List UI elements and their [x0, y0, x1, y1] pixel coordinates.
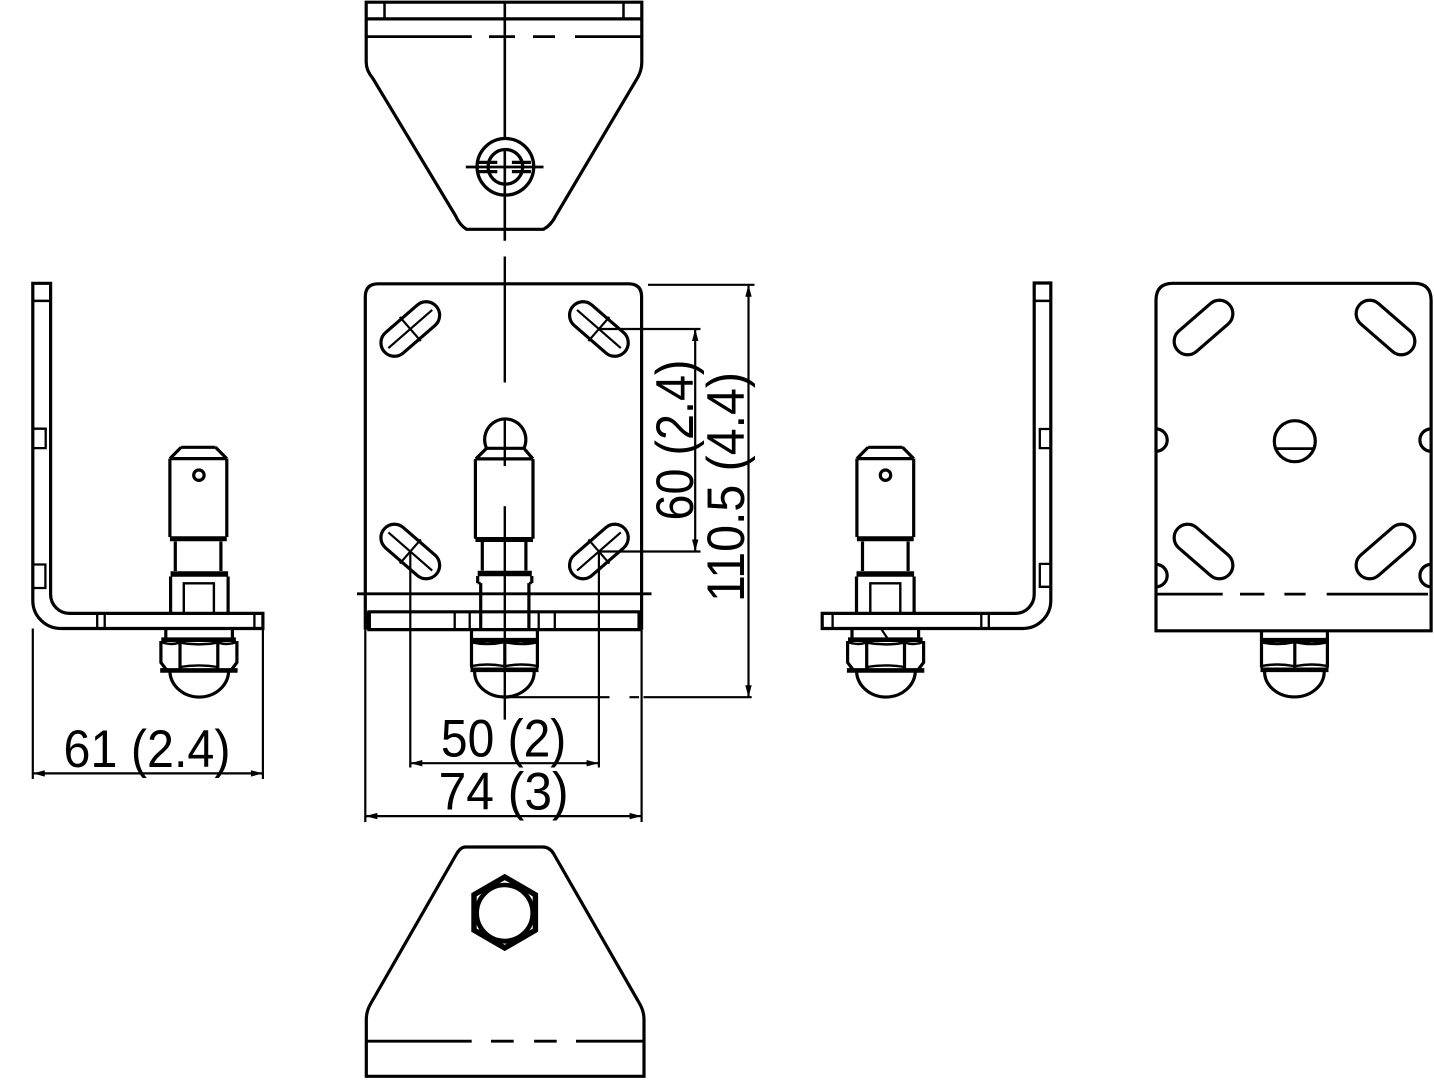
svg-text:61 (2.4): 61 (2.4): [64, 720, 231, 779]
svg-text:74 (3): 74 (3): [439, 763, 569, 822]
svg-text:110.5 (4.4): 110.5 (4.4): [697, 372, 756, 602]
svg-text:50 (2): 50 (2): [441, 710, 566, 769]
